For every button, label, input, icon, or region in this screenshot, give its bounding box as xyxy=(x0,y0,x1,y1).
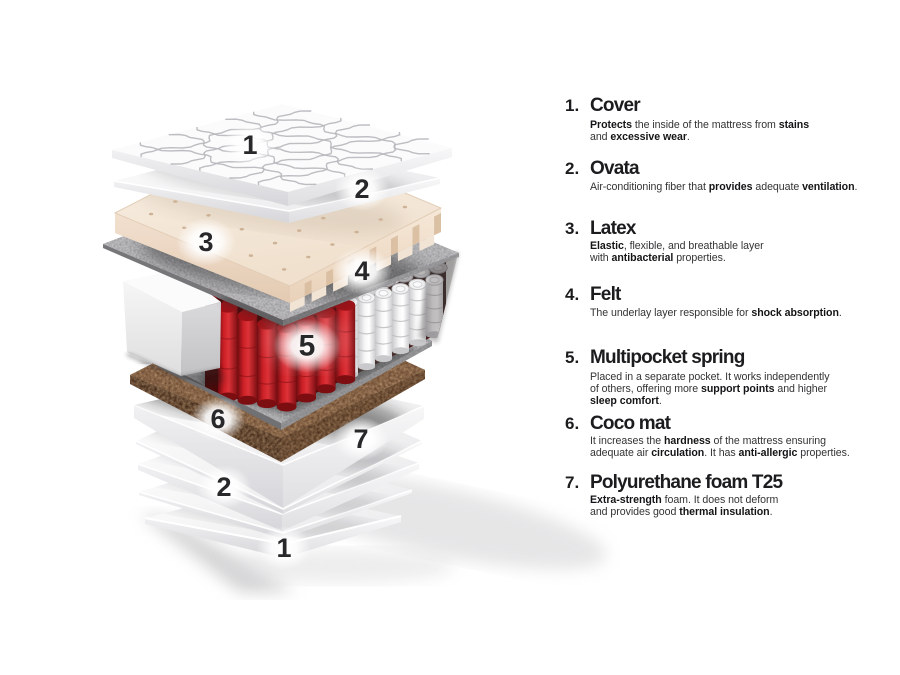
svg-text:3: 3 xyxy=(198,227,213,257)
svg-text:1: 1 xyxy=(276,533,291,563)
svg-text:4: 4 xyxy=(354,256,369,286)
svg-text:5: 5 xyxy=(299,330,316,363)
svg-text:6: 6 xyxy=(210,404,225,434)
svg-text:2: 2 xyxy=(216,472,231,502)
svg-text:2: 2 xyxy=(354,174,369,204)
svg-text:1: 1 xyxy=(242,130,257,160)
svg-text:7: 7 xyxy=(353,424,368,454)
